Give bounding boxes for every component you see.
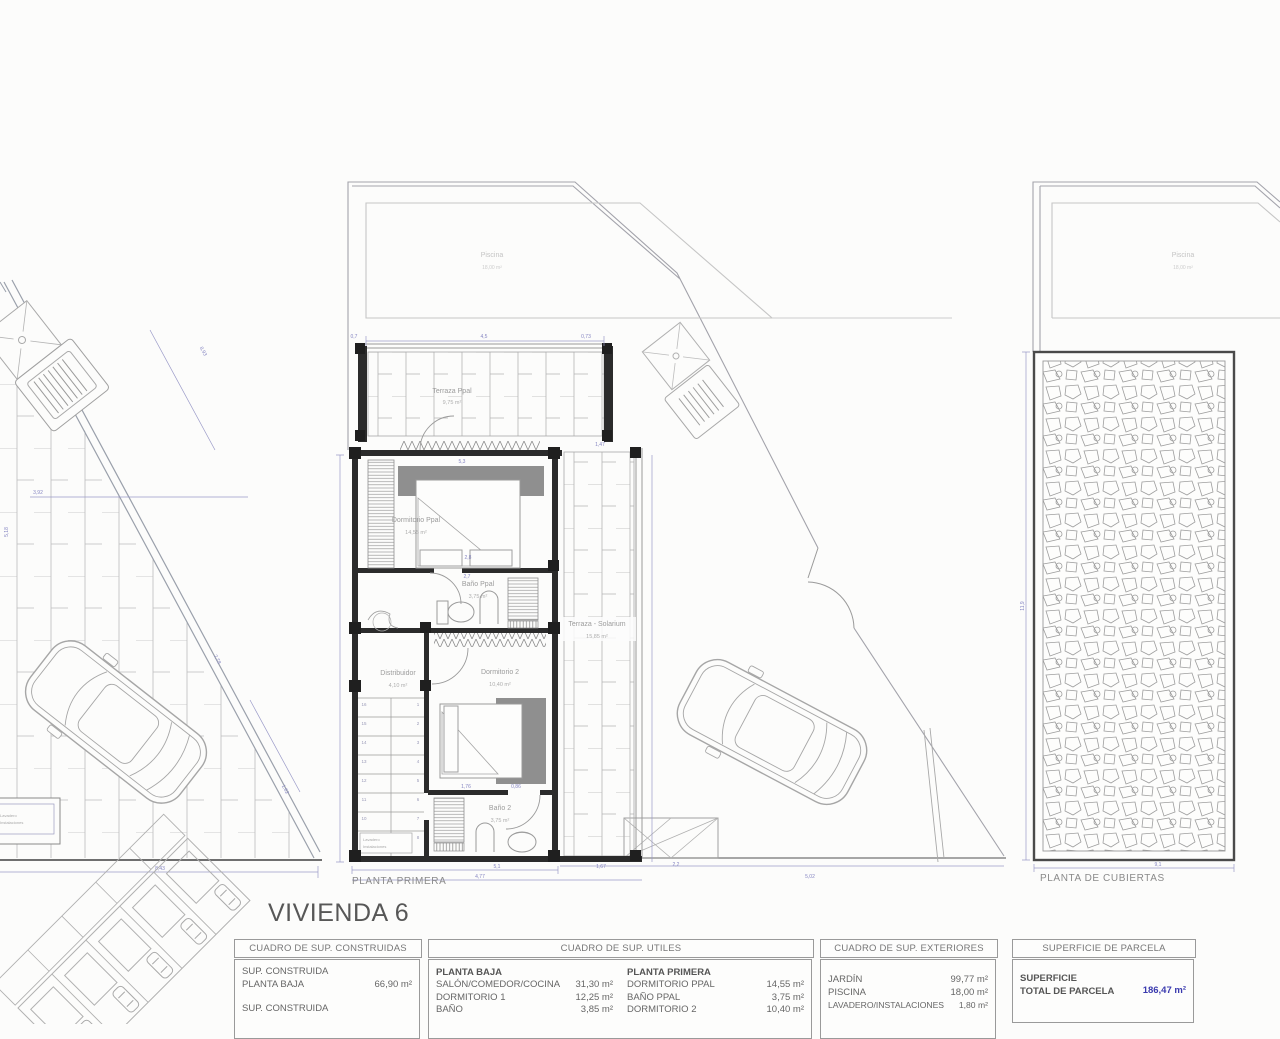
svg-text:Terraza - Solarium: Terraza - Solarium (568, 621, 625, 628)
grille (434, 843, 464, 851)
svg-text:11: 11 (362, 797, 367, 802)
radiator-icon (508, 578, 538, 620)
table-row: DORMITORIO 112,25 m² (436, 992, 613, 1005)
svg-text:10,40 m²: 10,40 m² (489, 682, 511, 688)
svg-text:2,7: 2,7 (464, 574, 471, 580)
table-row: JARDÍN99,77 m² (828, 974, 988, 987)
svg-text:7: 7 (417, 816, 420, 821)
svg-text:10: 10 (361, 816, 367, 821)
svg-text:2,2: 2,2 (673, 862, 680, 868)
svg-text:16: 16 (361, 702, 367, 707)
svg-text:3,92: 3,92 (33, 490, 43, 496)
svg-text:Instalaciones: Instalaciones (0, 820, 23, 825)
svg-text:Piscina: Piscina (1172, 252, 1195, 259)
wardrobe (368, 460, 394, 568)
table-construidas: SUP. CONSTRUIDA PLANTA BAJA66,90 m² SUP.… (234, 959, 420, 1039)
table-row: TOTAL DE PARCELA186,47 m² (1020, 985, 1186, 998)
table-row: DORMITORIO 210,40 m² (627, 1004, 804, 1017)
bano-2: Baño 2 3,75 m² (434, 798, 536, 852)
svg-text:Terraza Ppal: Terraza Ppal (432, 388, 472, 395)
table-row: SUP. CONSTRUIDA (242, 966, 412, 979)
svg-text:1,67: 1,67 (596, 864, 606, 870)
svg-text:12: 12 (361, 778, 367, 783)
table-row: BAÑO PPAL3,75 m² (627, 992, 804, 1005)
svg-text:Baño 2: Baño 2 (489, 805, 511, 812)
blueprint-canvas: Lavadero Instalaciones 3,92 8,43 8,93 1,… (0, 0, 1280, 1024)
svg-text:Instalaciones: Instalaciones (363, 844, 386, 849)
car-icon (665, 644, 879, 820)
grille (508, 621, 538, 628)
bano-ppal: Baño Ppal 3,75 m² (437, 578, 538, 628)
svg-text:5,02: 5,02 (805, 874, 815, 880)
table-utiles: PLANTA BAJA SALÓN/COMEDOR/COCINA31,30 m²… (428, 959, 812, 1039)
svg-text:5: 5 (417, 778, 420, 783)
svg-text:3: 3 (417, 740, 420, 745)
svg-text:3,75 m²: 3,75 m² (491, 818, 510, 824)
toilet-icon (437, 601, 474, 624)
first-floor-plan: Piscina 18,00 m² Terraz (336, 182, 1006, 887)
svg-text:7,78: 7,78 (212, 654, 222, 666)
terraza-solarium: Terraza - Solarium 15,85 m² (560, 448, 642, 862)
table-parcela-header: SUPERFICIE DE PARCELA (1012, 939, 1196, 958)
sink-icon (476, 823, 494, 852)
svg-text:Dormitorio Ppal: Dormitorio Ppal (392, 517, 441, 524)
svg-text:1,47: 1,47 (595, 442, 605, 448)
svg-text:14: 14 (361, 740, 367, 745)
total-parcela-value: 186,47 m² (1143, 985, 1186, 998)
bed (440, 704, 522, 778)
plant-icon (368, 611, 398, 628)
svg-text:3,75 m²: 3,75 m² (469, 594, 488, 600)
ground-floor-plan: Lavadero Instalaciones 3,92 8,43 8,93 1,… (0, 280, 322, 878)
svg-text:5,1: 5,1 (494, 864, 501, 870)
svg-text:Baño Ppal: Baño Ppal (462, 581, 495, 588)
table-row: PLANTA BAJA66,90 m² (242, 979, 412, 992)
svg-text:2,8: 2,8 (465, 555, 472, 561)
roof-slab (1034, 352, 1234, 860)
svg-text:4,77: 4,77 (475, 874, 485, 880)
table-parcela: SUPERFICIE TOTAL DE PARCELA186,47 m² (1012, 959, 1194, 1023)
svg-text:15,85 m²: 15,85 m² (586, 634, 608, 640)
svg-text:Lavadero: Lavadero (363, 837, 380, 842)
svg-text:2: 2 (417, 721, 420, 726)
svg-text:9,1: 9,1 (1155, 862, 1162, 868)
svg-text:0,7: 0,7 (351, 334, 358, 340)
svg-text:4: 4 (417, 759, 420, 764)
utiles-planta-primera: PLANTA PRIMERA DORMITORIO PPAL14,55 m² B… (627, 966, 804, 1017)
svg-text:Piscina: Piscina (481, 252, 504, 259)
table-construidas-header: CUADRO DE SUP. CONSTRUIDAS (234, 939, 422, 958)
svg-text:9,75 m²: 9,75 m² (443, 400, 462, 406)
svg-text:6: 6 (417, 797, 420, 802)
svg-text:11,9: 11,9 (1020, 601, 1026, 611)
dormitorio-2: Dormitorio 2 10,40 m² (440, 669, 546, 784)
svg-text:14,55 m²: 14,55 m² (405, 530, 427, 536)
table-exteriores-header: CUADRO DE SUP. EXTERIORES (820, 939, 998, 958)
radiator-icon (434, 798, 464, 842)
fence (924, 728, 944, 862)
page-title: VIVIENDA 6 (268, 899, 409, 928)
svg-text:15: 15 (361, 721, 367, 726)
svg-text:Lavadero: Lavadero (0, 813, 17, 818)
instalaciones-label: Lavadero Instalaciones (0, 798, 60, 844)
stairs: 16 15 14 13 12 11 10 9 1 2 3 4 5 6 7 8 L… (358, 698, 424, 856)
table-row: BAÑO3,85 m² (436, 1004, 613, 1017)
table-row: LAVADERO/INSTALACIONES1,80 m² (828, 999, 988, 1012)
svg-text:Dormitorio 2: Dormitorio 2 (481, 669, 519, 676)
svg-text:1,76: 1,76 (461, 784, 471, 790)
distribuidor: Distribuidor 4,10 m² (368, 611, 416, 689)
parcel-boundary (1033, 182, 1280, 352)
table-row: DORMITORIO PPAL14,55 m² (627, 979, 804, 992)
table-exteriores: JARDÍN99,77 m² PISCINA18,00 m² LAVADERO/… (820, 959, 996, 1039)
svg-text:4,5: 4,5 (481, 334, 488, 340)
roof-plan: Piscina 18,00 m² 11,9 9,1 PLANTA DE CUBI… (1020, 182, 1280, 884)
utiles-planta-baja: PLANTA BAJA SALÓN/COMEDOR/COCINA31,30 m²… (436, 966, 613, 1017)
gate-arc (808, 548, 854, 628)
svg-text:8: 8 (417, 835, 420, 840)
svg-text:8,93: 8,93 (198, 346, 208, 358)
svg-text:4,10 m²: 4,10 m² (389, 683, 408, 689)
svg-text:18,00 m²: 18,00 m² (482, 265, 502, 271)
table-row: PISCINA18,00 m² (828, 987, 988, 1000)
svg-text:5,3: 5,3 (459, 459, 466, 465)
table-row: SALÓN/COMEDOR/COCINA31,30 m² (436, 979, 613, 992)
lavadero-label: Lavadero Instalaciones (360, 833, 412, 853)
pool-outline: Piscina 18,00 m² (1052, 203, 1280, 318)
table-utiles-header: CUADRO DE SUP. UTILES (428, 939, 814, 958)
first-floor-label: PLANTA PRIMERA (352, 876, 446, 887)
svg-text:0,73: 0,73 (581, 334, 591, 340)
roof-plan-label: PLANTA DE CUBIERTAS (1040, 873, 1165, 884)
window-band (434, 633, 546, 647)
svg-text:0,86: 0,86 (511, 784, 521, 790)
dormitorio-ppal: Dormitorio Ppal 14,55 m² (368, 460, 544, 568)
svg-text:Distribuidor: Distribuidor (380, 670, 416, 677)
table-row: SUP. CONSTRUIDA (242, 1003, 412, 1016)
terraza-ppal: Terraza Ppal 9,75 m² (358, 344, 613, 442)
svg-text:5,18: 5,18 (4, 527, 10, 537)
svg-text:13: 13 (361, 759, 367, 764)
svg-text:18,00 m²: 18,00 m² (1173, 265, 1193, 271)
svg-text:1: 1 (417, 702, 420, 707)
floor-plan-drawing: Lavadero Instalaciones 3,92 8,43 8,93 1,… (0, 0, 1280, 1024)
